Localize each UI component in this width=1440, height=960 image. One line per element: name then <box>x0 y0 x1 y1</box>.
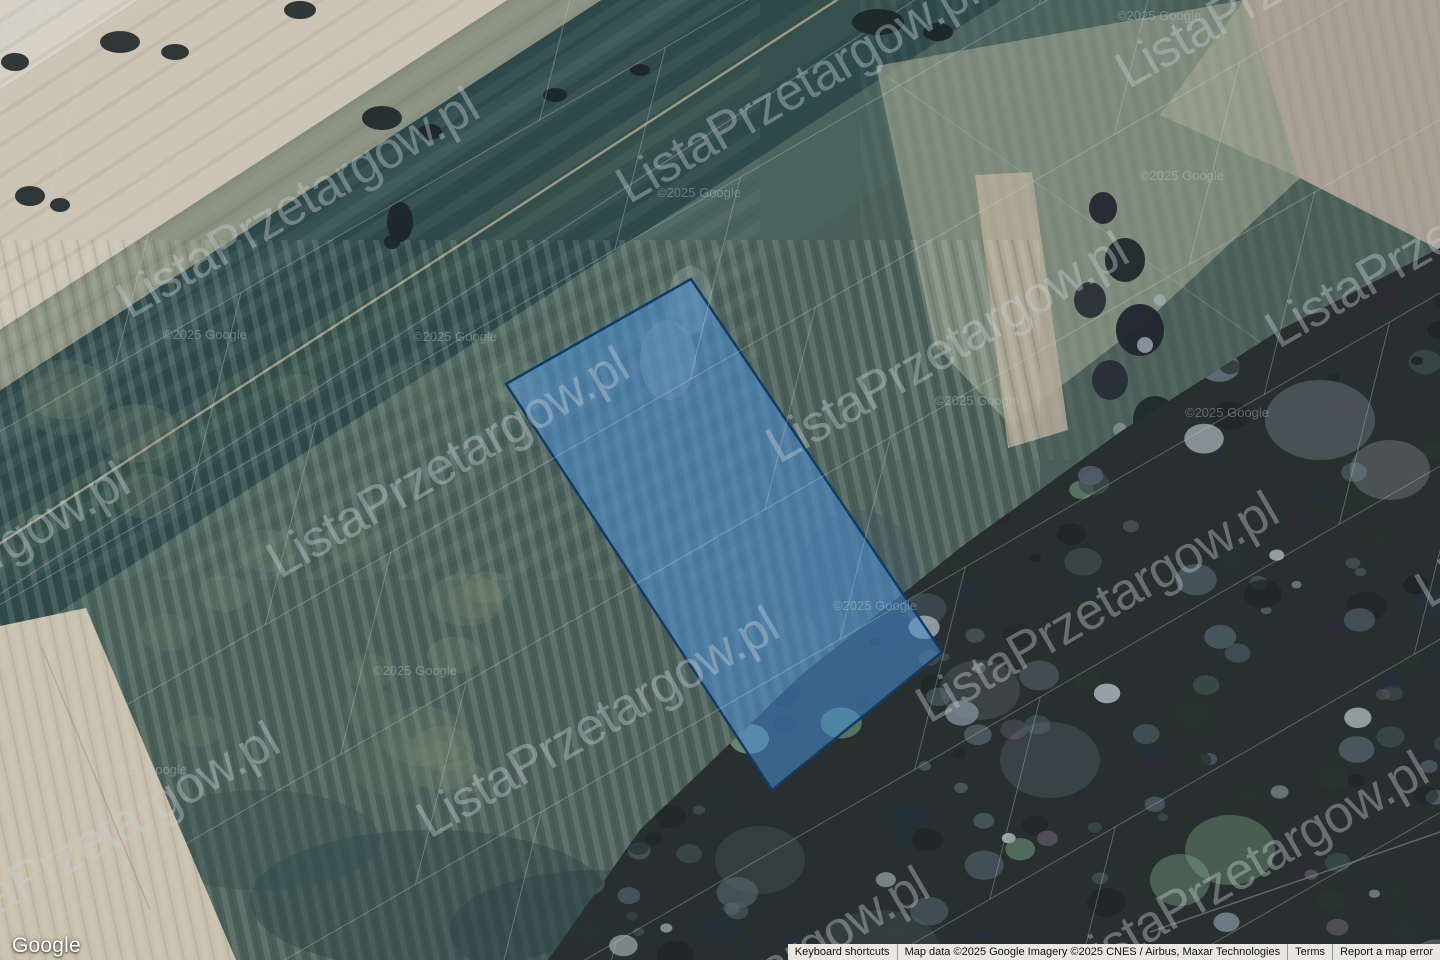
google-logo[interactable]: Google <box>12 935 81 956</box>
report-map-error-link[interactable]: Report a map error <box>1332 944 1440 960</box>
terms-link[interactable]: Terms <box>1287 944 1332 960</box>
attribution-bar: Keyboard shortcuts Map data ©2025 Google… <box>788 944 1440 960</box>
satellite-imagery[interactable]: ListaPrzetargow.plListaPrzetargow.plList… <box>0 0 1440 960</box>
keyboard-shortcuts-button[interactable]: Keyboard shortcuts <box>788 944 897 960</box>
map-viewport[interactable]: ListaPrzetargow.plListaPrzetargow.plList… <box>0 0 1440 960</box>
map-data-attribution: Map data ©2025 Google Imagery ©2025 CNES… <box>897 944 1288 960</box>
